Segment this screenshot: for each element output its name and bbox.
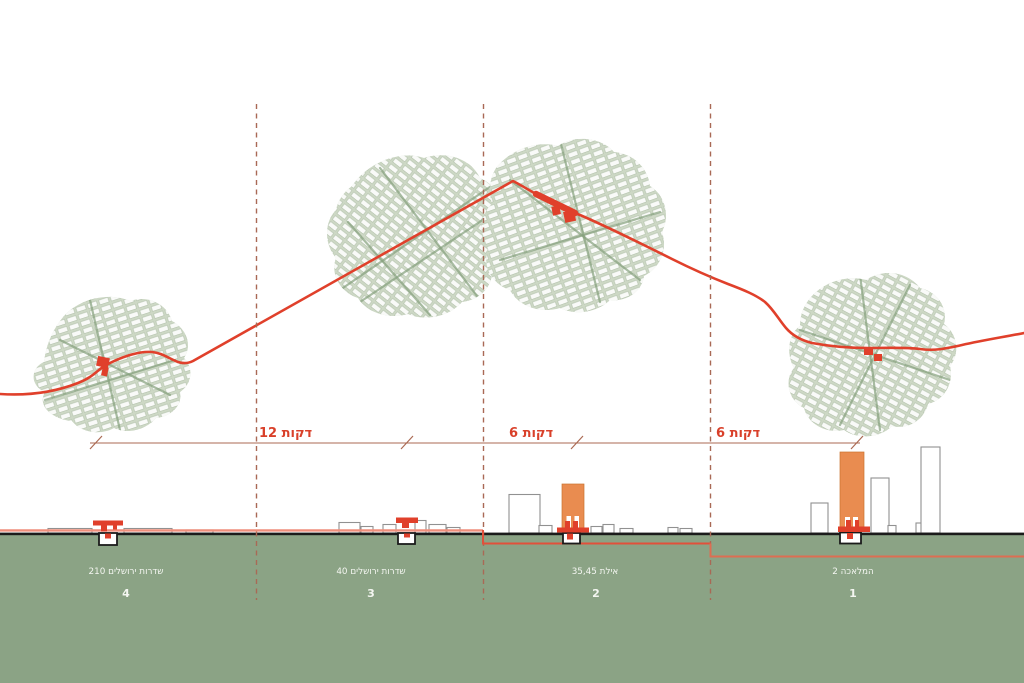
- station-platform-2: [557, 528, 589, 533]
- station-number-1: 1: [833, 587, 873, 600]
- station-platform-1: [838, 527, 870, 533]
- station-platform-3: [396, 518, 418, 524]
- urban-corridor-section-diagram: 12 דקות 6 דקות 6 דקות שדרות ירושלים 210 …: [0, 0, 1024, 683]
- station-name-2: אילת 35,45: [495, 567, 695, 577]
- station-tower-1: [840, 452, 864, 527]
- station-marker-map-1: [864, 347, 873, 355]
- station-marker-map-1b: [874, 354, 882, 361]
- station-number-3: 3: [351, 587, 391, 600]
- station-name-4: שדרות ירושלים 210: [26, 567, 226, 577]
- travel-time-label-6min-a: 6 דקות: [509, 426, 553, 441]
- map-fragment-station-2: [475, 130, 680, 325]
- map-fragment-station-4: [20, 280, 210, 450]
- ground-line: [0, 533, 1024, 536]
- section-buildings: [48, 447, 940, 533]
- diagram-graphics: [0, 0, 1024, 683]
- station-platform-4: [93, 521, 123, 526]
- travel-time-label-12min: 12 דקות: [259, 426, 312, 441]
- station-number-4: 4: [106, 587, 146, 600]
- station-marker-map-23b: [563, 210, 576, 223]
- station-name-1: המלאכה 2: [753, 567, 953, 577]
- station-name-3: שדרות ירושלים 40: [271, 567, 471, 577]
- travel-time-label-6min-b: 6 דקות: [716, 426, 760, 441]
- station-number-2: 2: [576, 587, 616, 600]
